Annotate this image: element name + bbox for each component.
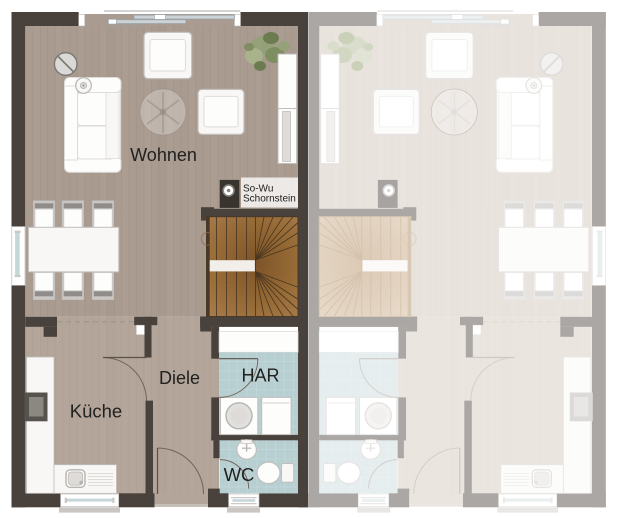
svg-text:Schornstein: Schornstein	[243, 194, 296, 205]
svg-text:HAR: HAR	[241, 366, 279, 386]
svg-text:Wohnen: Wohnen	[130, 145, 197, 165]
svg-text:Diele: Diele	[159, 368, 200, 388]
svg-text:Küche: Küche	[70, 401, 122, 422]
svg-text:WC: WC	[224, 464, 255, 485]
